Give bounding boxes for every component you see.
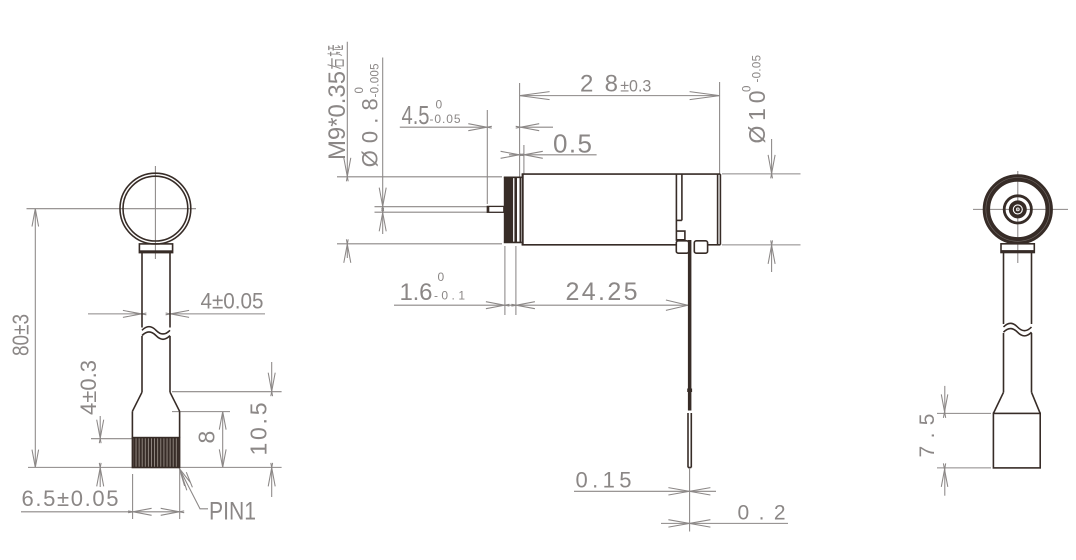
svg-text:4±0.3: 4±0.3 bbox=[76, 360, 101, 415]
svg-text:7.5: 7.5 bbox=[916, 414, 939, 458]
svg-text:0: 0 bbox=[438, 270, 445, 284]
svg-text:0: 0 bbox=[436, 98, 443, 112]
svg-text:80±3: 80±3 bbox=[8, 314, 34, 356]
svg-text:0: 0 bbox=[354, 87, 366, 93]
svg-text:0.5: 0.5 bbox=[553, 129, 592, 159]
svg-text:4.5: 4.5 bbox=[402, 100, 430, 130]
svg-text:Ø10: Ø10 bbox=[744, 91, 770, 144]
svg-text:0: 0 bbox=[742, 86, 754, 92]
svg-text:10.5: 10.5 bbox=[246, 403, 272, 456]
svg-text:8: 8 bbox=[194, 431, 220, 444]
svg-text:-0.05: -0.05 bbox=[752, 55, 764, 83]
svg-text:6.5±0.05: 6.5±0.05 bbox=[22, 486, 119, 511]
svg-text:Ø0.8: Ø0.8 bbox=[358, 98, 383, 167]
svg-text:4±0.05: 4±0.05 bbox=[201, 289, 264, 314]
svg-text:PIN1: PIN1 bbox=[209, 498, 256, 526]
svg-text:0.15: 0.15 bbox=[576, 468, 632, 493]
svg-text:24.25: 24.25 bbox=[566, 278, 638, 306]
svg-text:-0.005: -0.005 bbox=[370, 64, 382, 98]
svg-text:0.2: 0.2 bbox=[738, 502, 786, 525]
svg-text:-0.05: -0.05 bbox=[430, 112, 461, 126]
svg-text:M9*0.35: M9*0.35 bbox=[324, 71, 351, 160]
svg-text:1.6: 1.6 bbox=[400, 279, 433, 306]
